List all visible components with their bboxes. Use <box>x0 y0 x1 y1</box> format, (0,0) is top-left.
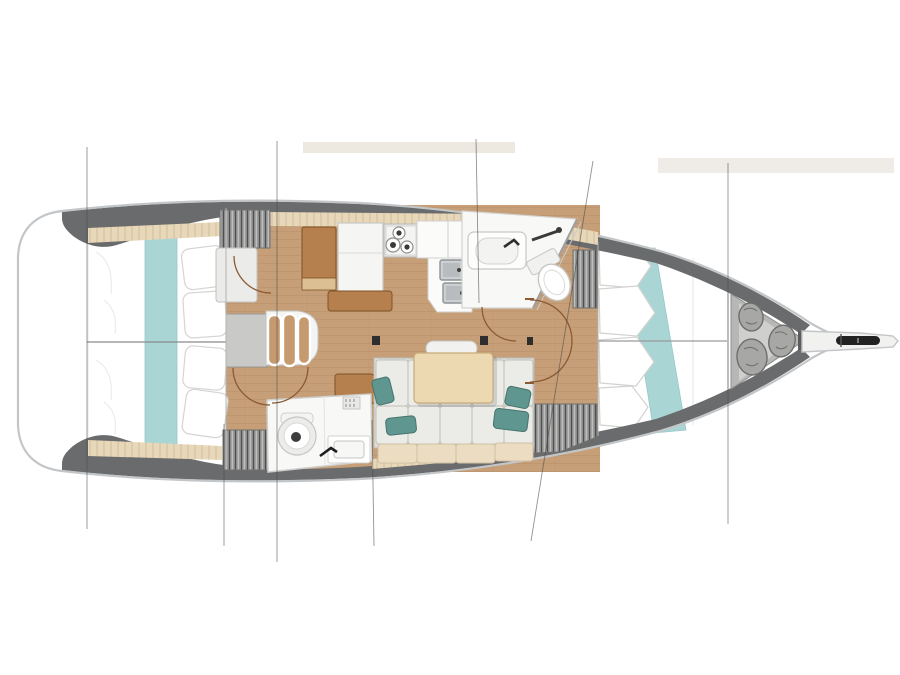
mast-step-icon <box>372 336 380 345</box>
wardrobe-forward-port <box>573 250 597 308</box>
aft-cabin-starboard <box>88 342 229 450</box>
bed-runner <box>145 342 177 450</box>
locker-cabinet <box>216 248 257 302</box>
boat-floor-plan <box>0 0 900 675</box>
aft-head <box>267 394 372 472</box>
stove <box>384 224 418 257</box>
faint-deck-shadows <box>303 142 894 173</box>
chart-table <box>338 223 383 293</box>
saloon <box>371 341 534 463</box>
companionway-steps <box>268 314 310 366</box>
companionway <box>226 311 318 367</box>
shelf-icon <box>343 397 360 409</box>
wardrobe-aft-starboard <box>223 430 268 470</box>
mast-step-icon <box>480 336 488 345</box>
dining-table <box>414 353 493 403</box>
vanity-washbasin-icon <box>468 232 526 269</box>
galley-bench <box>328 291 392 311</box>
wardrobe-aft-port <box>220 210 270 248</box>
door-hinge <box>527 337 533 345</box>
toilet-icon <box>278 413 316 455</box>
yacht-layout-image <box>0 0 900 675</box>
sofa-front-cushions <box>378 443 533 463</box>
companionway-platform <box>226 314 267 367</box>
counter <box>417 221 448 258</box>
washbasin-icon <box>320 436 370 463</box>
aft-cabins <box>18 211 229 470</box>
bowsprit <box>798 330 898 352</box>
bed-runner <box>145 230 177 342</box>
